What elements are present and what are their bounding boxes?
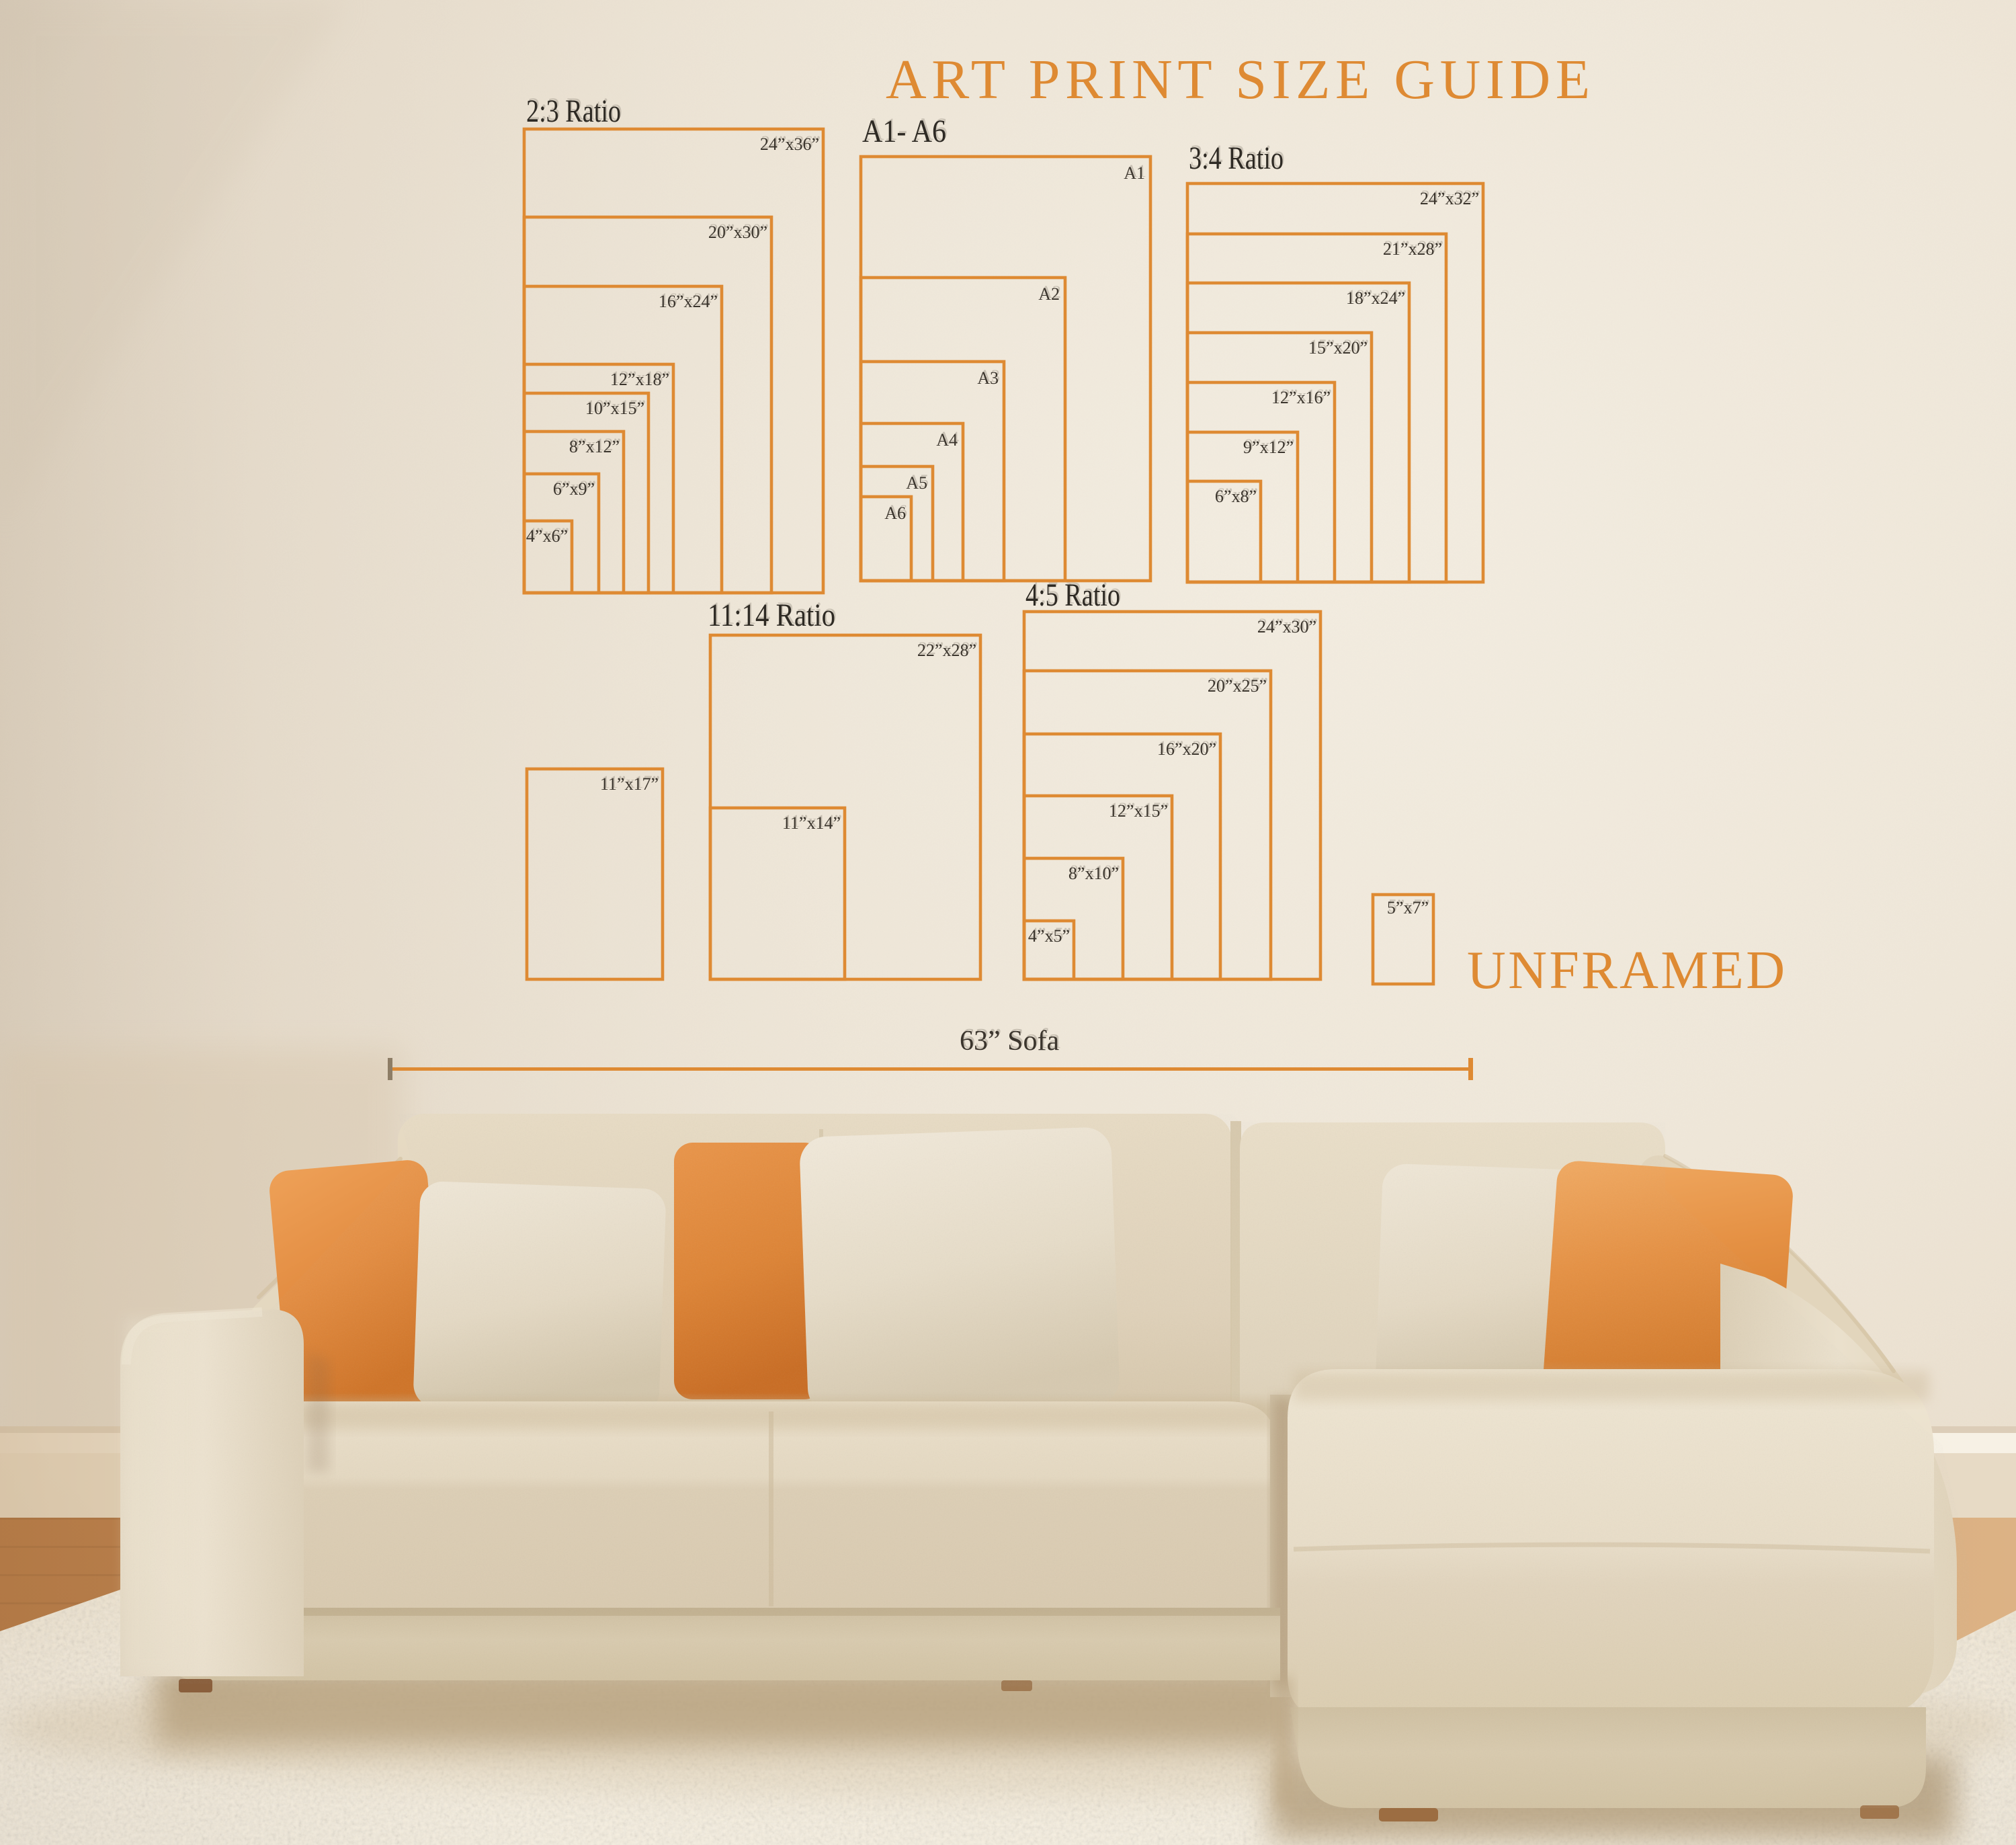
svg-text:6”x8”: 6”x8” [1215, 487, 1257, 506]
svg-text:5”x7”: 5”x7” [1387, 898, 1429, 917]
svg-text:20”x25”: 20”x25” [1208, 676, 1267, 696]
svg-text:A3: A3 [977, 368, 999, 388]
svg-text:12”x18”: 12”x18” [610, 370, 669, 389]
svg-text:18”x24”: 18”x24” [1346, 288, 1405, 308]
svg-text:A2: A2 [1038, 284, 1060, 304]
svg-text:11:14 Ratio: 11:14 Ratio [708, 598, 835, 633]
svg-text:A4: A4 [936, 430, 958, 450]
svg-text:A1- A6: A1- A6 [862, 114, 946, 149]
svg-text:21”x28”: 21”x28” [1383, 239, 1442, 259]
svg-text:15”x20”: 15”x20” [1308, 338, 1368, 358]
svg-text:4:5 Ratio: 4:5 Ratio [1025, 577, 1120, 613]
svg-text:24”x32”: 24”x32” [1420, 189, 1479, 208]
svg-text:4”x6”: 4”x6” [526, 526, 568, 546]
svg-text:24”x30”: 24”x30” [1257, 617, 1316, 637]
svg-text:20”x30”: 20”x30” [708, 222, 767, 242]
svg-text:22”x28”: 22”x28” [917, 641, 976, 660]
svg-text:11”x17”: 11”x17” [600, 774, 659, 794]
svg-text:6”x9”: 6”x9” [553, 479, 595, 499]
svg-text:UNFRAMED: UNFRAMED [1467, 941, 1785, 1000]
svg-text:A5: A5 [906, 473, 927, 493]
svg-text:4”x5”: 4”x5” [1028, 926, 1070, 946]
svg-text:9”x12”: 9”x12” [1243, 438, 1294, 457]
svg-text:2:3 Ratio: 2:3 Ratio [526, 93, 621, 129]
svg-text:A6: A6 [884, 503, 906, 523]
svg-text:8”x12”: 8”x12” [569, 437, 620, 456]
svg-text:8”x10”: 8”x10” [1068, 864, 1119, 883]
svg-text:10”x15”: 10”x15” [585, 399, 644, 418]
svg-text:24”x36”: 24”x36” [760, 134, 819, 154]
svg-text:A1: A1 [1124, 163, 1145, 183]
svg-text:16”x24”: 16”x24” [659, 292, 718, 311]
svg-text:16”x20”: 16”x20” [1157, 739, 1216, 759]
svg-text:11”x14”: 11”x14” [782, 813, 841, 833]
svg-text:63” Sofa: 63” Sofa [960, 1026, 1059, 1057]
svg-text:12”x16”: 12”x16” [1271, 388, 1331, 407]
svg-text:3:4 Ratio: 3:4 Ratio [1189, 140, 1284, 176]
svg-text:12”x15”: 12”x15” [1109, 801, 1168, 821]
